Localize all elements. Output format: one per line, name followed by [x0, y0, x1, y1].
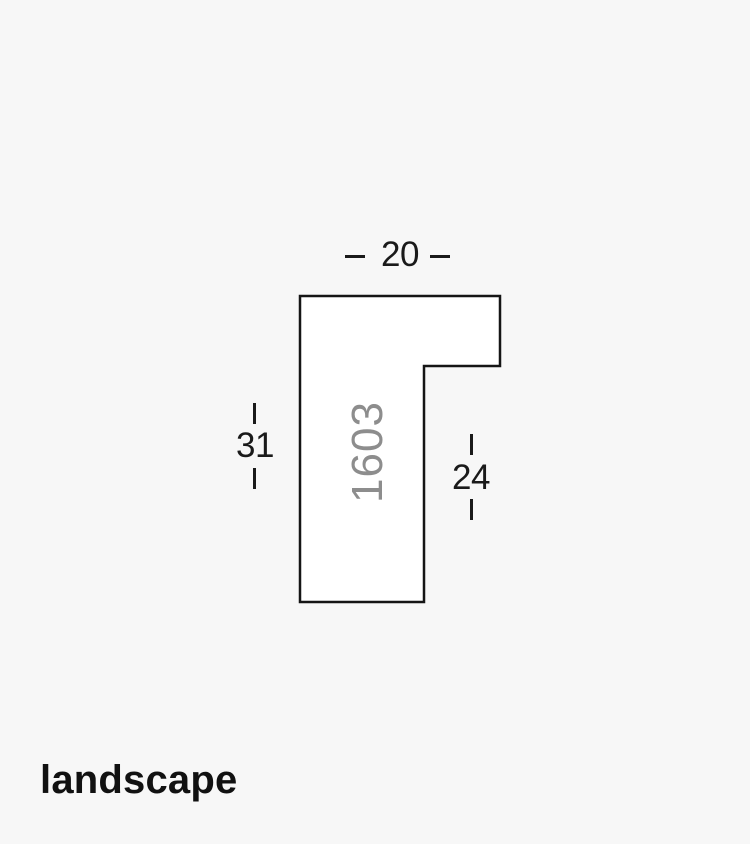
profile-code-label: 1603 — [343, 352, 393, 552]
right-dimension-value: 24 — [431, 458, 511, 498]
right-dimension-top-tick — [470, 434, 473, 455]
moulding-profile-diagram: 20 31 24 1603 landscape — [0, 0, 750, 844]
left-dimension-top-tick — [253, 403, 256, 424]
orientation-caption: landscape — [40, 758, 237, 803]
right-dimension-bottom-tick — [470, 499, 473, 520]
top-dimension-value: 20 — [360, 235, 440, 275]
top-dimension-right-dash — [430, 255, 450, 258]
left-dimension-bottom-tick — [253, 468, 256, 489]
left-dimension-value: 31 — [215, 426, 295, 466]
